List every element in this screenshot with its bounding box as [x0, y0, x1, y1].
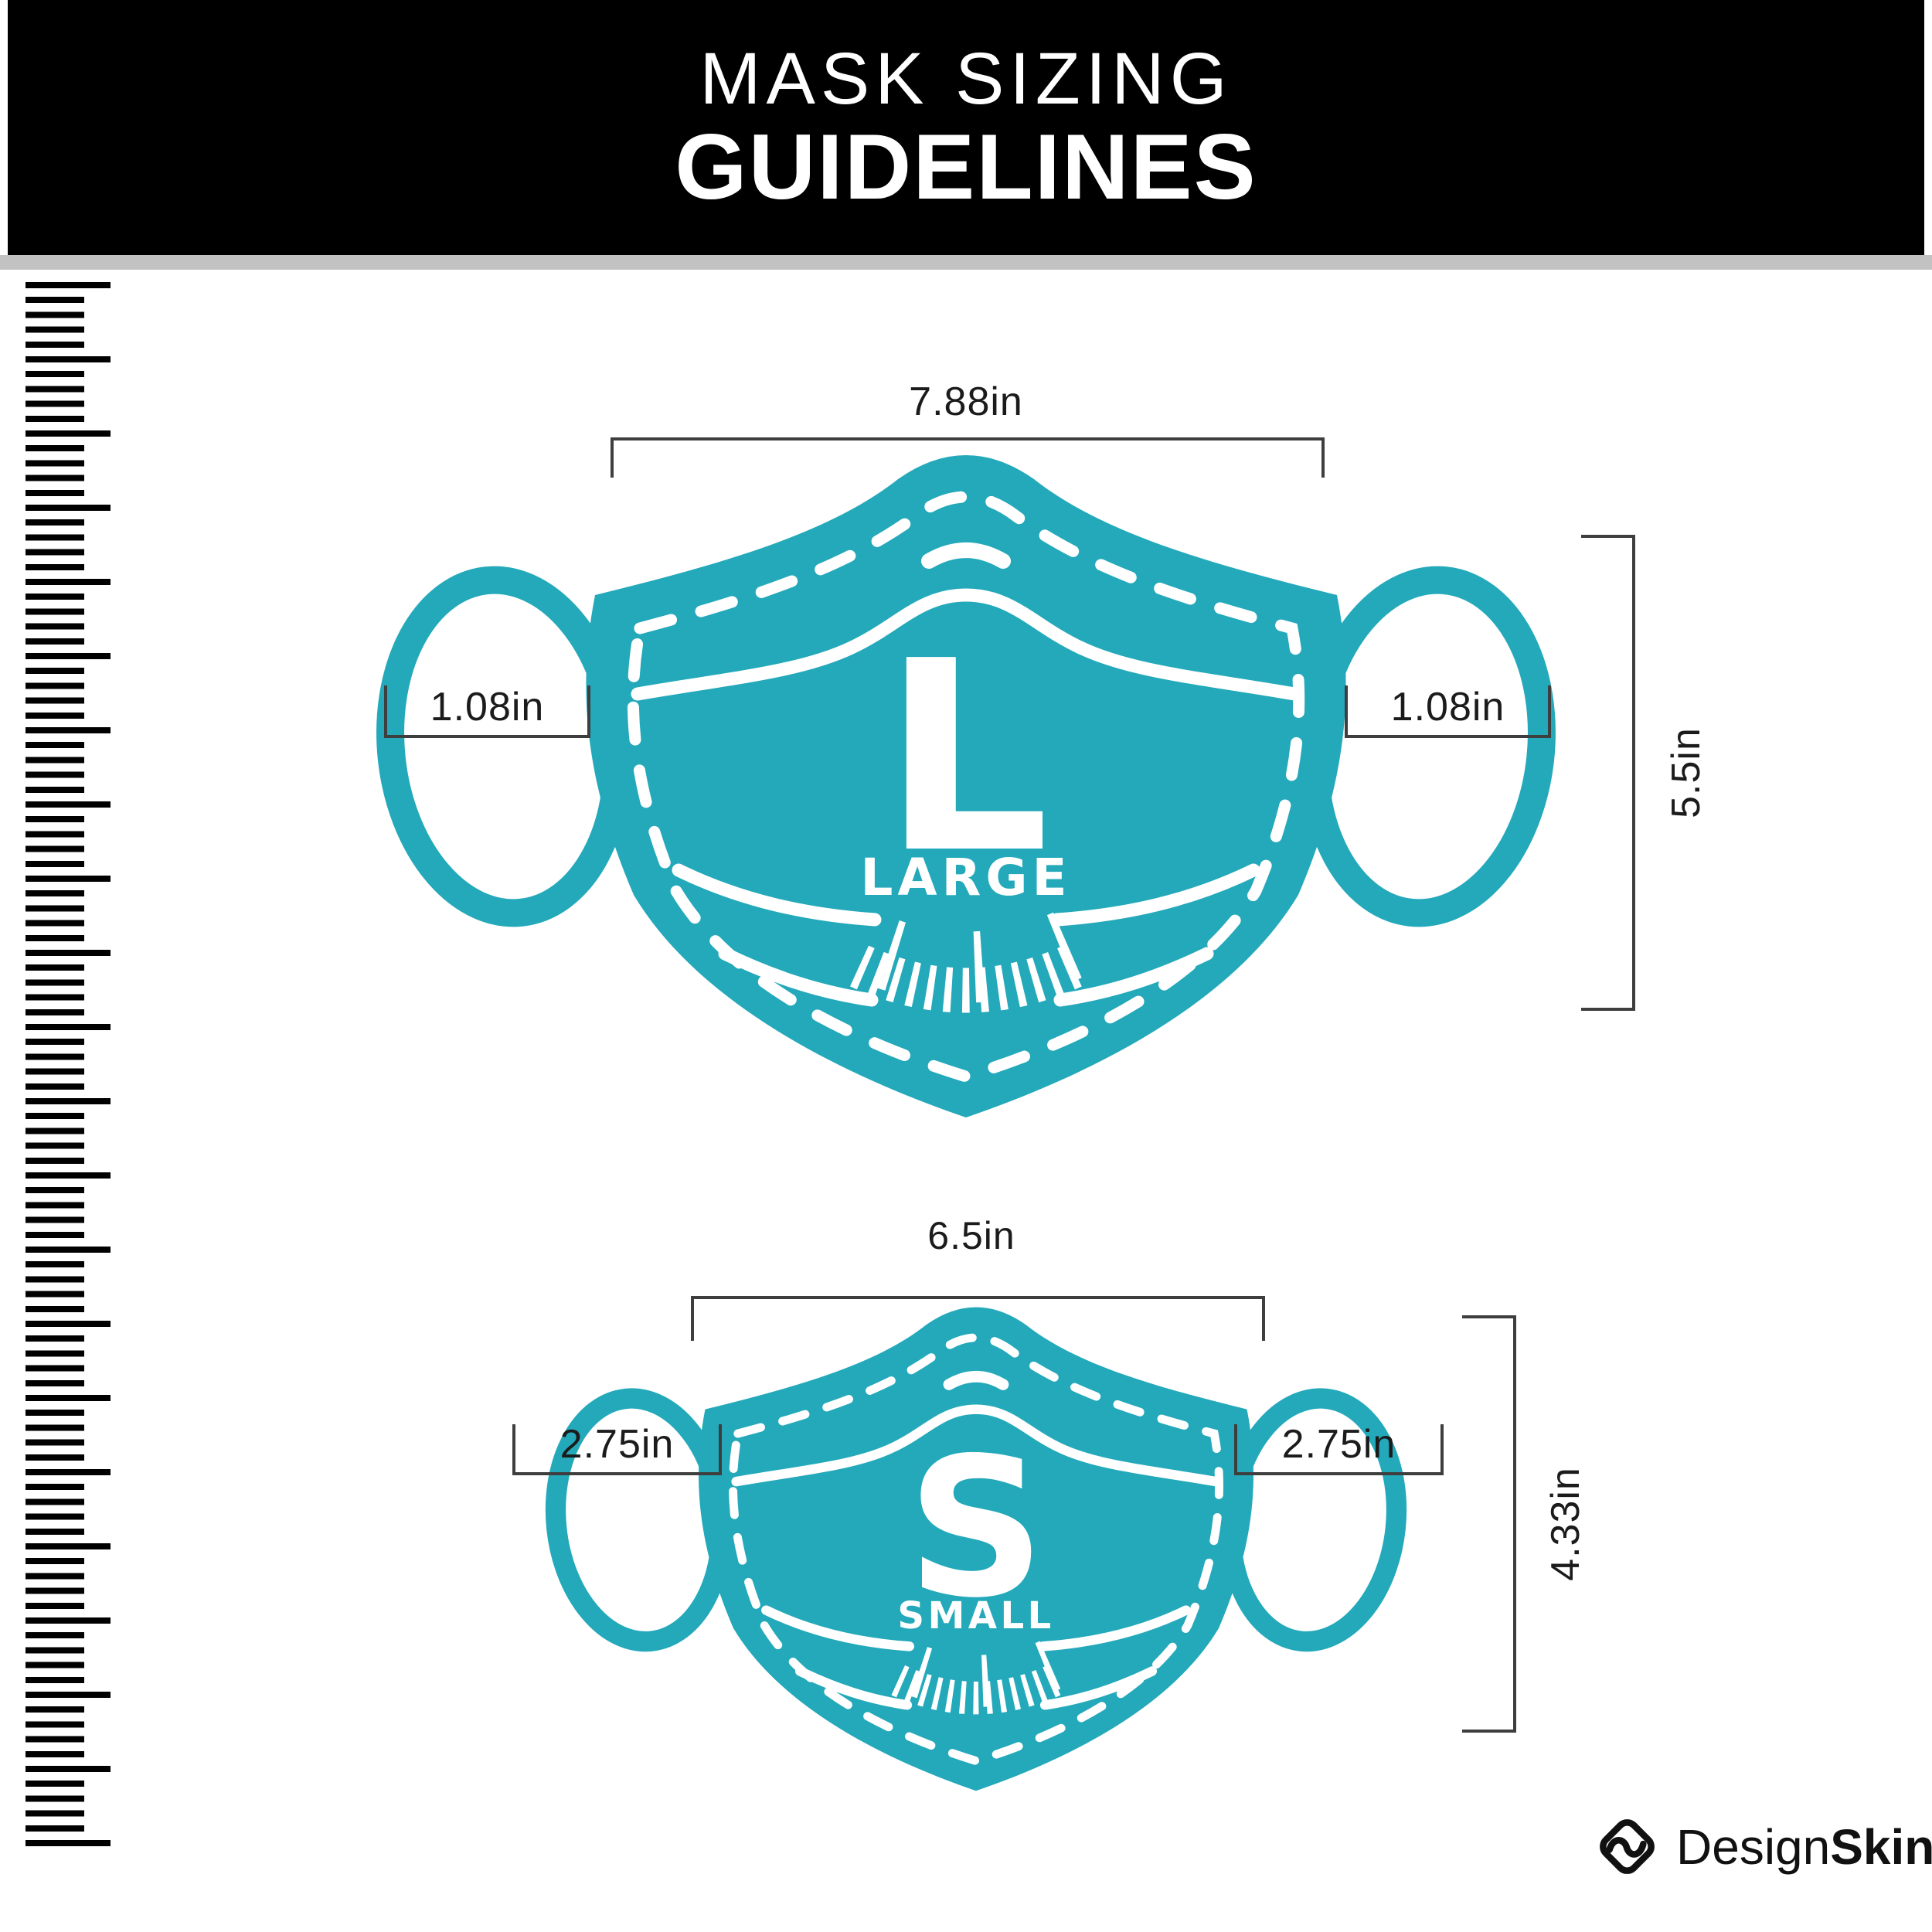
header-divider-bar — [0, 255, 1932, 270]
small-width-dimension-value: 6.5in — [855, 1213, 1087, 1258]
infographic-canvas: MASK SIZING GUIDELINES L LARGE 7.88in 1.… — [0, 0, 1932, 1932]
small-ear-right-dimension-bracket: 2.75in — [1234, 1424, 1444, 1475]
small-mask-illustration: S SMALL — [547, 1312, 1405, 1787]
page-title-line2: GUIDELINES — [675, 121, 1257, 213]
page-title-line1: MASK SIZING — [699, 43, 1232, 116]
large-ear-left-dimension-bracket: 1.08in — [384, 685, 590, 738]
designskinz-diamond-s-logo-icon — [1590, 1810, 1664, 1883]
large-width-dimension-bracket — [611, 437, 1325, 478]
large-mask-size-word: LARGE — [860, 848, 1071, 907]
small-width-dimension-bracket — [691, 1296, 1265, 1341]
small-mask-size-word: SMALL — [897, 1594, 1054, 1638]
large-ear-left-dimension-value: 1.08in — [430, 684, 545, 735]
large-ear-right-dimension-bracket: 1.08in — [1345, 685, 1551, 738]
small-height-dimension-bracket — [1462, 1315, 1516, 1733]
small-ear-left-dimension-bracket: 2.75in — [512, 1424, 722, 1475]
small-ear-right-dimension-value: 2.75in — [1282, 1421, 1396, 1472]
large-width-dimension-value: 7.88in — [850, 379, 1082, 425]
small-ear-left-dimension-value: 2.75in — [560, 1421, 675, 1472]
large-height-dimension-value: 5.5in — [1663, 688, 1709, 858]
left-ruler-major-ticks-icon — [26, 282, 111, 1849]
brand-name-bold: Skinz — [1830, 1819, 1932, 1875]
header-banner: MASK SIZING GUIDELINES — [8, 0, 1924, 255]
large-ear-right-dimension-value: 1.08in — [1391, 684, 1505, 735]
brand-name-regular: Design — [1676, 1819, 1830, 1875]
small-height-dimension-value: 4.33in — [1543, 1439, 1589, 1609]
large-height-dimension-bracket — [1581, 535, 1635, 1011]
brand-footer: DesignSkinz — [1590, 1810, 1932, 1883]
large-mask-illustration: L LARGE — [379, 462, 1553, 1113]
brand-name: DesignSkinz — [1676, 1822, 1932, 1872]
